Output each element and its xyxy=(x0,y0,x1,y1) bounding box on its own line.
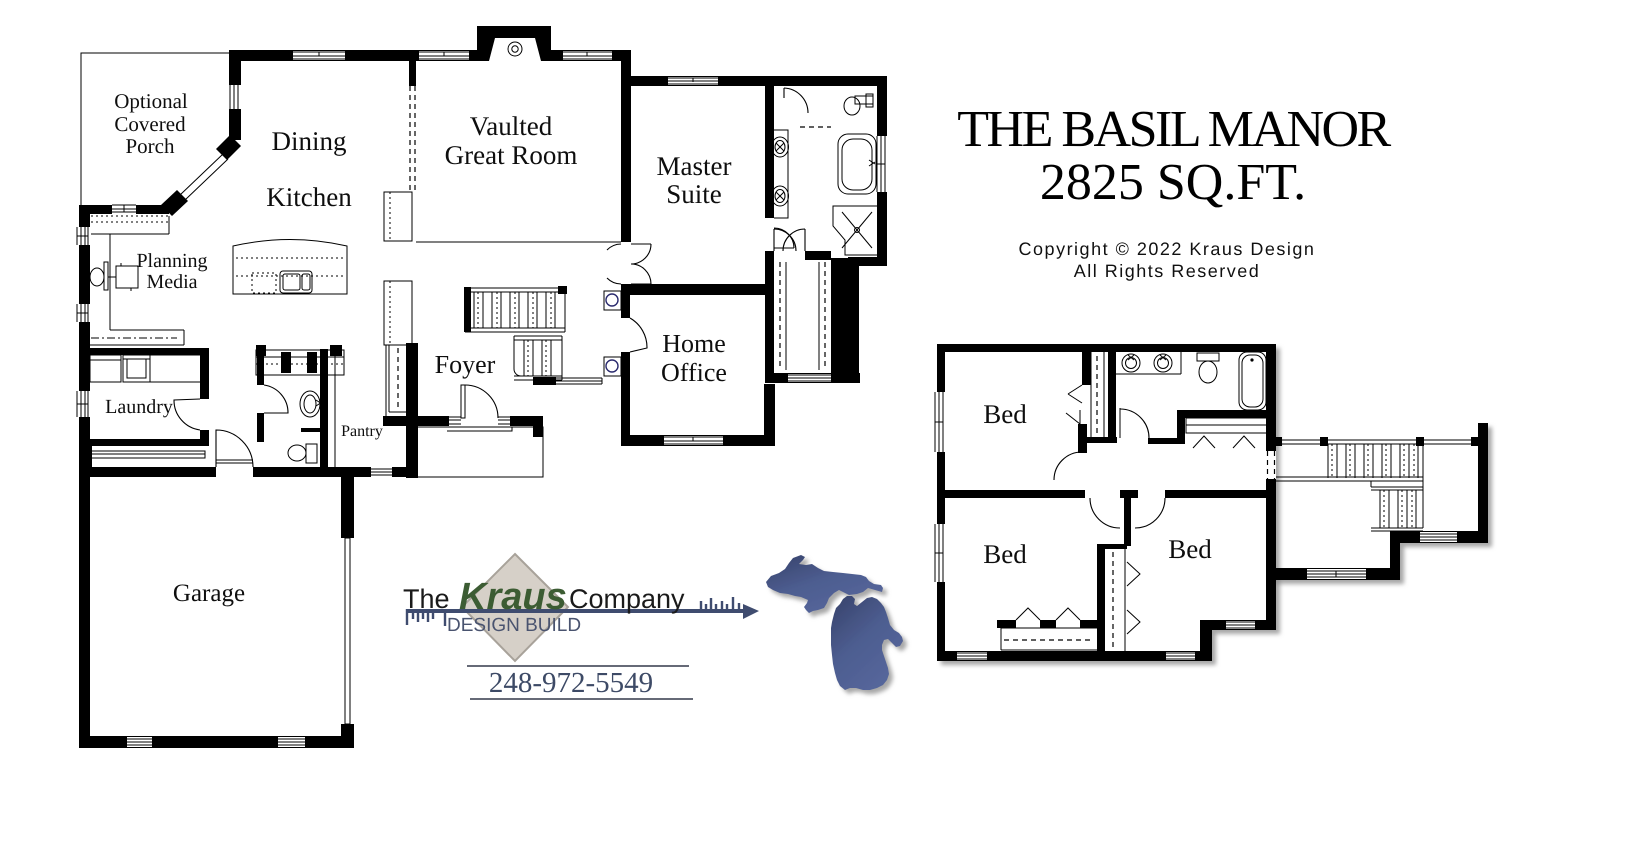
svg-text:Home: Home xyxy=(662,329,726,358)
svg-text:Office: Office xyxy=(661,358,727,387)
svg-text:Dining: Dining xyxy=(271,126,346,156)
svg-text:Copyright © 2022 Kraus Design: Copyright © 2022 Kraus Design xyxy=(1019,239,1316,259)
svg-text:Covered: Covered xyxy=(114,112,186,136)
svg-text:Vaulted: Vaulted xyxy=(470,111,553,141)
svg-text:Laundry: Laundry xyxy=(105,396,173,418)
svg-text:Bed: Bed xyxy=(983,399,1027,429)
svg-text:Planning: Planning xyxy=(136,250,207,272)
svg-text:Suite: Suite xyxy=(666,179,722,209)
svg-text:248-972-5549: 248-972-5549 xyxy=(489,667,653,699)
svg-text:THE BASIL MANOR: THE BASIL MANOR xyxy=(957,101,1391,158)
svg-text:The: The xyxy=(403,584,450,614)
svg-text:2825 SQ.FT.: 2825 SQ.FT. xyxy=(1040,154,1306,211)
svg-text:Media: Media xyxy=(146,271,197,293)
svg-text:Foyer: Foyer xyxy=(435,350,496,379)
svg-text:Kitchen: Kitchen xyxy=(266,182,352,212)
svg-text:Company: Company xyxy=(569,584,685,614)
svg-text:Garage: Garage xyxy=(173,580,245,607)
svg-text:Master: Master xyxy=(657,151,732,181)
svg-text:DESIGN BUILD: DESIGN BUILD xyxy=(447,615,581,636)
svg-text:Bed: Bed xyxy=(1168,534,1212,564)
svg-text:Kraus: Kraus xyxy=(459,576,567,618)
svg-text:Porch: Porch xyxy=(126,134,175,158)
svg-text:Great Room: Great Room xyxy=(445,140,578,170)
svg-text:Optional: Optional xyxy=(114,89,188,113)
svg-text:Pantry: Pantry xyxy=(341,423,383,440)
svg-text:All Rights Reserved: All Rights Reserved xyxy=(1074,261,1261,281)
svg-text:Bed: Bed xyxy=(983,539,1027,569)
